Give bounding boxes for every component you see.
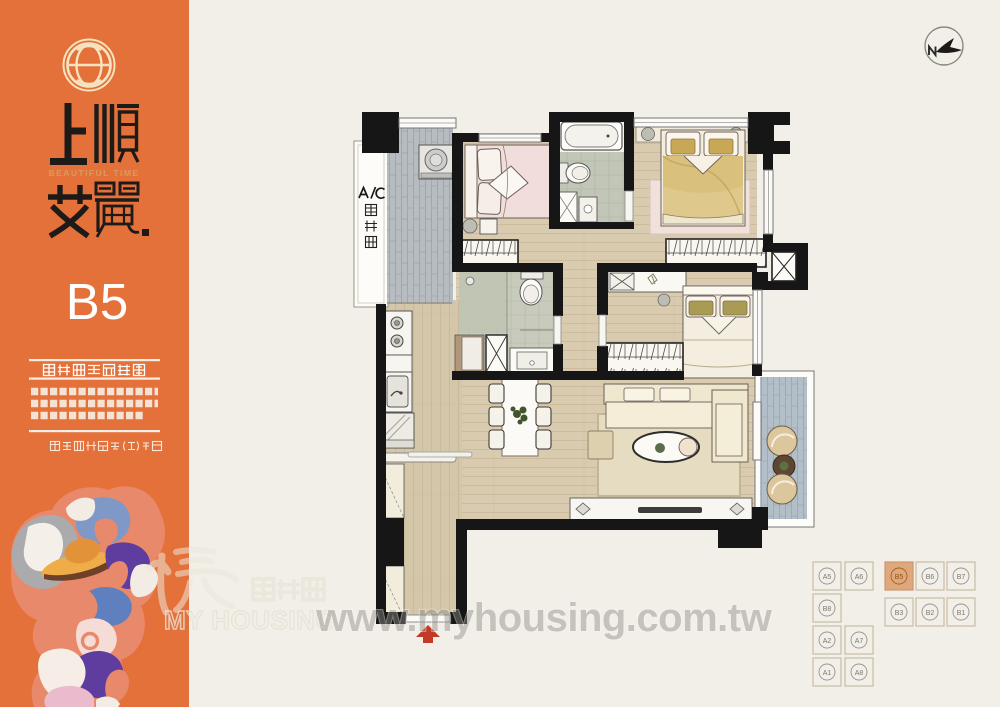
svg-text:A7: A7 bbox=[855, 638, 864, 645]
svg-text:B6: B6 bbox=[926, 574, 935, 581]
svg-text:B5: B5 bbox=[895, 574, 904, 581]
svg-text:B1: B1 bbox=[957, 610, 966, 617]
svg-text:A6: A6 bbox=[855, 574, 864, 581]
svg-text:B3: B3 bbox=[895, 610, 904, 617]
svg-text:B8: B8 bbox=[823, 606, 832, 613]
svg-text:A5: A5 bbox=[823, 574, 832, 581]
svg-text:B2: B2 bbox=[926, 610, 935, 617]
svg-text:MY HOUSING: MY HOUSING bbox=[164, 605, 336, 635]
svg-text:www.myhousing.com.tw: www.myhousing.com.tw bbox=[315, 596, 773, 640]
svg-text:A8: A8 bbox=[855, 670, 864, 677]
svg-text:B7: B7 bbox=[957, 574, 966, 581]
svg-text:B5: B5 bbox=[66, 273, 128, 330]
svg-text:BEAUTIFUL TIME: BEAUTIFUL TIME bbox=[48, 168, 139, 178]
svg-text:A2: A2 bbox=[823, 638, 832, 645]
svg-text:A1: A1 bbox=[823, 670, 832, 677]
